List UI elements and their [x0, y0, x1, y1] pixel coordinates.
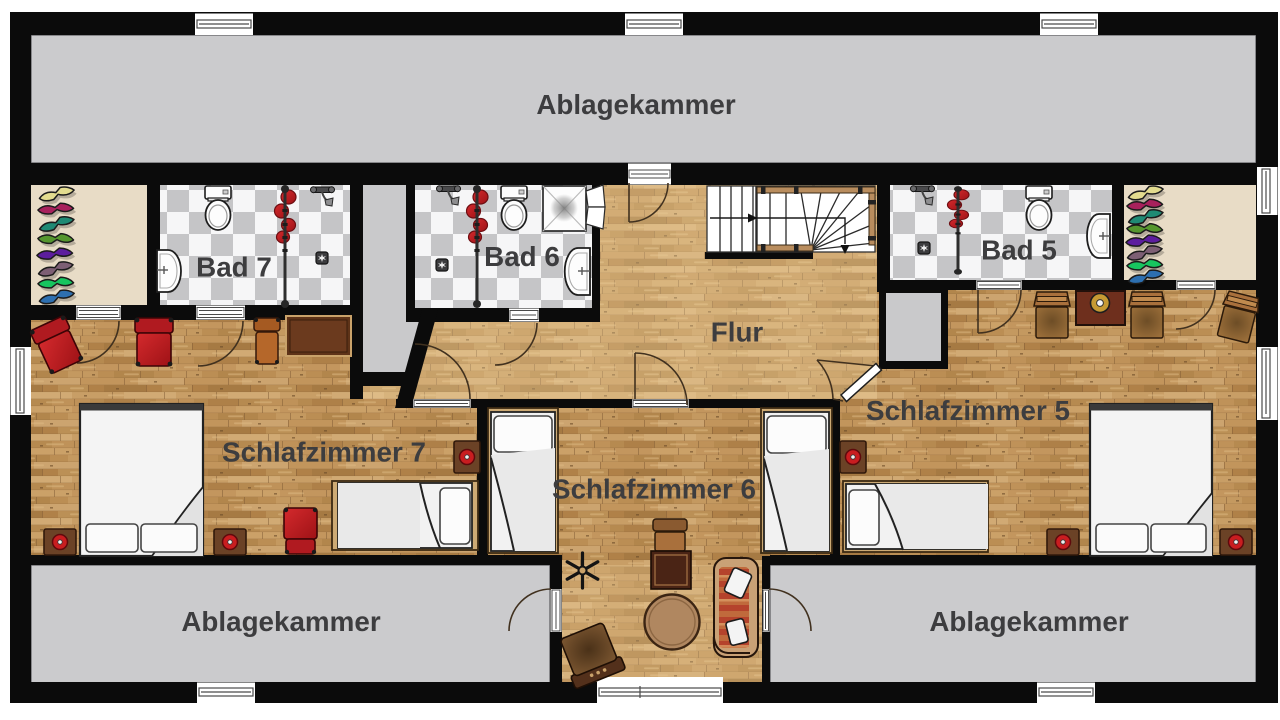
svg-text:Bad 6: Bad 6: [484, 241, 560, 272]
svg-text:Schlafzimmer 7: Schlafzimmer 7: [222, 437, 426, 468]
svg-text:Ablagekammer: Ablagekammer: [929, 606, 1128, 637]
svg-text:Bad 7: Bad 7: [196, 252, 272, 283]
svg-text:Ablagekammer: Ablagekammer: [536, 89, 735, 120]
svg-text:Flur: Flur: [711, 317, 764, 348]
svg-text:Ablagekammer: Ablagekammer: [181, 606, 380, 637]
svg-text:Schlafzimmer 5: Schlafzimmer 5: [866, 395, 1070, 426]
svg-text:Schlafzimmer 6: Schlafzimmer 6: [552, 474, 756, 505]
svg-text:Bad 5: Bad 5: [981, 235, 1057, 266]
